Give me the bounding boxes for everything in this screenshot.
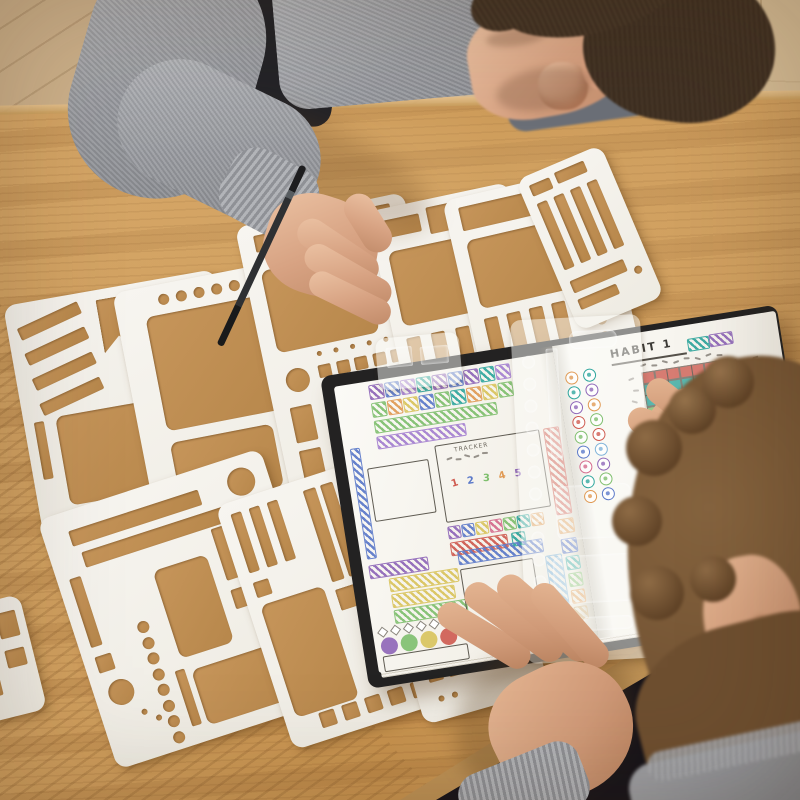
- hair-curl: [626, 420, 682, 476]
- head-bottom: [0, 0, 800, 800]
- hair-curl: [702, 356, 754, 408]
- person-bottom: [0, 0, 800, 800]
- hair-curl: [630, 566, 684, 620]
- screenshot-root: TRACKER 12345 HABIT 1: [0, 0, 800, 800]
- hair-curl: [690, 556, 736, 602]
- hair-curl: [612, 496, 662, 546]
